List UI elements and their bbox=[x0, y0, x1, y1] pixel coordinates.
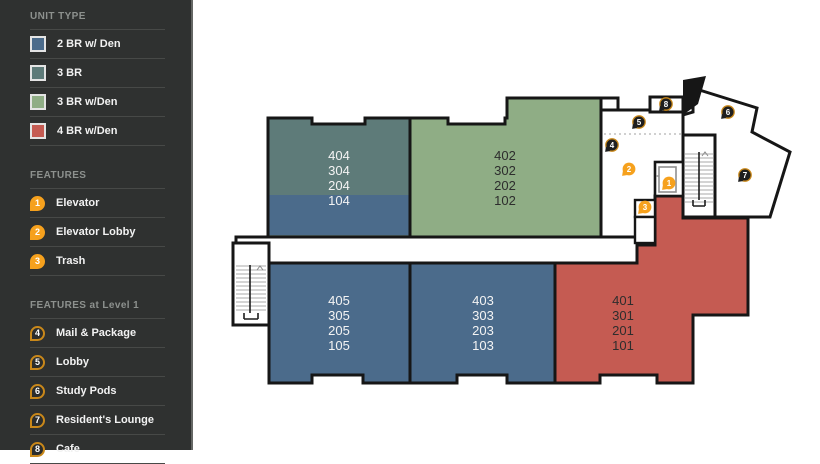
unit-stack-403[interactable]: 403 303 203 103 bbox=[410, 263, 555, 383]
features-level1-header: FEATURES at Level 1 bbox=[30, 276, 165, 319]
unit-stack-label: 405 305 205 105 bbox=[328, 293, 350, 353]
legend-label: 3 BR bbox=[57, 67, 82, 79]
floorplan-svg: 404 304 204 104 402 302 202 102 405 305 … bbox=[195, 0, 820, 450]
unit-stack-402[interactable]: 402 302 202 102 bbox=[410, 98, 601, 237]
svg-text:202: 202 bbox=[494, 178, 516, 193]
feature-label: Trash bbox=[56, 255, 85, 267]
feature-item-lobby[interactable]: 5 Lobby bbox=[30, 348, 165, 377]
feature-label: Resident's Lounge bbox=[56, 414, 154, 426]
feature-item-trash[interactable]: 3 Trash bbox=[30, 247, 165, 276]
pin-6-icon: 6 bbox=[30, 384, 45, 399]
svg-text:8: 8 bbox=[664, 100, 669, 109]
legend-label: 4 BR w/Den bbox=[57, 125, 118, 137]
feature-label: Mail & Package bbox=[56, 327, 136, 339]
unit-stack-label: 401 301 201 101 bbox=[612, 293, 634, 353]
feature-label: Elevator bbox=[56, 197, 99, 209]
unit-stack-405[interactable]: 405 305 205 105 bbox=[269, 263, 410, 383]
corridor bbox=[236, 237, 637, 263]
svg-text:402: 402 bbox=[494, 148, 516, 163]
pin-8-icon: 8 bbox=[30, 442, 45, 457]
swatch-3br bbox=[30, 65, 46, 81]
stairwell-west bbox=[233, 243, 269, 325]
svg-text:403: 403 bbox=[472, 293, 494, 308]
map-pin-mail-package[interactable]: 4 bbox=[605, 139, 618, 152]
svg-text:103: 103 bbox=[472, 338, 494, 353]
pin-3-icon: 3 bbox=[30, 254, 45, 269]
pin-1-icon: 1 bbox=[30, 196, 45, 211]
legend-label: 3 BR w/Den bbox=[57, 96, 118, 108]
features-section: FEATURES 1 Elevator 2 Elevator Lobby 3 T… bbox=[30, 146, 165, 276]
feature-item-elevator-lobby[interactable]: 2 Elevator Lobby bbox=[30, 218, 165, 247]
svg-text:105: 105 bbox=[328, 338, 350, 353]
pin-4-icon: 4 bbox=[30, 326, 45, 341]
svg-text:203: 203 bbox=[472, 323, 494, 338]
map-pin-lobby[interactable]: 5 bbox=[632, 116, 645, 129]
stairwell-east bbox=[683, 135, 715, 217]
legend-item-4br-den[interactable]: 4 BR w/Den bbox=[30, 117, 165, 146]
svg-text:305: 305 bbox=[328, 308, 350, 323]
features-level1-section: FEATURES at Level 1 4 Mail & Package 5 L… bbox=[30, 276, 165, 464]
svg-text:302: 302 bbox=[494, 163, 516, 178]
svg-text:7: 7 bbox=[743, 171, 748, 180]
map-pin-residents-lounge[interactable]: 7 bbox=[738, 169, 751, 182]
pin-7-icon: 7 bbox=[30, 413, 45, 428]
feature-label: Elevator Lobby bbox=[56, 226, 135, 238]
svg-text:4: 4 bbox=[610, 141, 615, 150]
floorplan-canvas: 404 304 204 104 402 302 202 102 405 305 … bbox=[195, 0, 820, 450]
map-pin-cafe[interactable]: 8 bbox=[659, 98, 672, 111]
legend-item-3br-den[interactable]: 3 BR w/Den bbox=[30, 88, 165, 117]
map-pin-study-pods[interactable]: 6 bbox=[721, 106, 734, 119]
small-room bbox=[601, 98, 618, 110]
feature-label: Study Pods bbox=[56, 385, 117, 397]
swatch-4br-den bbox=[30, 123, 46, 139]
swatch-2br-den bbox=[30, 36, 46, 52]
unit-stack-label: 403 303 203 103 bbox=[472, 293, 494, 353]
svg-text:204: 204 bbox=[328, 178, 350, 193]
feature-label: Lobby bbox=[56, 356, 89, 368]
unit-stack-label: 402 302 202 102 bbox=[494, 148, 516, 208]
svg-text:404: 404 bbox=[328, 148, 350, 163]
unit-type-section: UNIT TYPE 2 BR w/ Den 3 BR 3 BR w/Den 4 … bbox=[30, 0, 165, 146]
svg-text:3: 3 bbox=[643, 203, 648, 212]
feature-label: Cafe bbox=[56, 443, 80, 455]
unit-stack-404[interactable]: 404 304 204 104 bbox=[268, 118, 410, 237]
legend-sidebar: UNIT TYPE 2 BR w/ Den 3 BR 3 BR w/Den 4 … bbox=[0, 0, 193, 450]
svg-text:301: 301 bbox=[612, 308, 634, 323]
svg-text:5: 5 bbox=[637, 118, 642, 127]
svg-text:201: 201 bbox=[612, 323, 634, 338]
legend-item-3br[interactable]: 3 BR bbox=[30, 59, 165, 88]
svg-text:2: 2 bbox=[627, 165, 632, 174]
feature-item-elevator[interactable]: 1 Elevator bbox=[30, 189, 165, 218]
features-header: FEATURES bbox=[30, 146, 165, 189]
svg-text:1: 1 bbox=[667, 179, 672, 188]
svg-text:401: 401 bbox=[612, 293, 634, 308]
pin-5-icon: 5 bbox=[30, 355, 45, 370]
unit-type-header: UNIT TYPE bbox=[30, 0, 165, 30]
svg-text:405: 405 bbox=[328, 293, 350, 308]
unit-stack-label: 404 304 204 104 bbox=[328, 148, 350, 208]
feature-item-residents-lounge[interactable]: 7 Resident's Lounge bbox=[30, 406, 165, 435]
svg-text:104: 104 bbox=[328, 193, 350, 208]
swatch-3br-den bbox=[30, 94, 46, 110]
legend-label: 2 BR w/ Den bbox=[57, 38, 121, 50]
feature-item-study-pods[interactable]: 6 Study Pods bbox=[30, 377, 165, 406]
svg-text:101: 101 bbox=[612, 338, 634, 353]
svg-text:102: 102 bbox=[494, 193, 516, 208]
svg-text:205: 205 bbox=[328, 323, 350, 338]
utility-room bbox=[635, 217, 655, 243]
svg-text:303: 303 bbox=[472, 308, 494, 323]
svg-text:304: 304 bbox=[328, 163, 350, 178]
svg-text:6: 6 bbox=[726, 108, 731, 117]
feature-item-mail-package[interactable]: 4 Mail & Package bbox=[30, 319, 165, 348]
pin-2-icon: 2 bbox=[30, 225, 45, 240]
legend-item-2br-den[interactable]: 2 BR w/ Den bbox=[30, 30, 165, 59]
